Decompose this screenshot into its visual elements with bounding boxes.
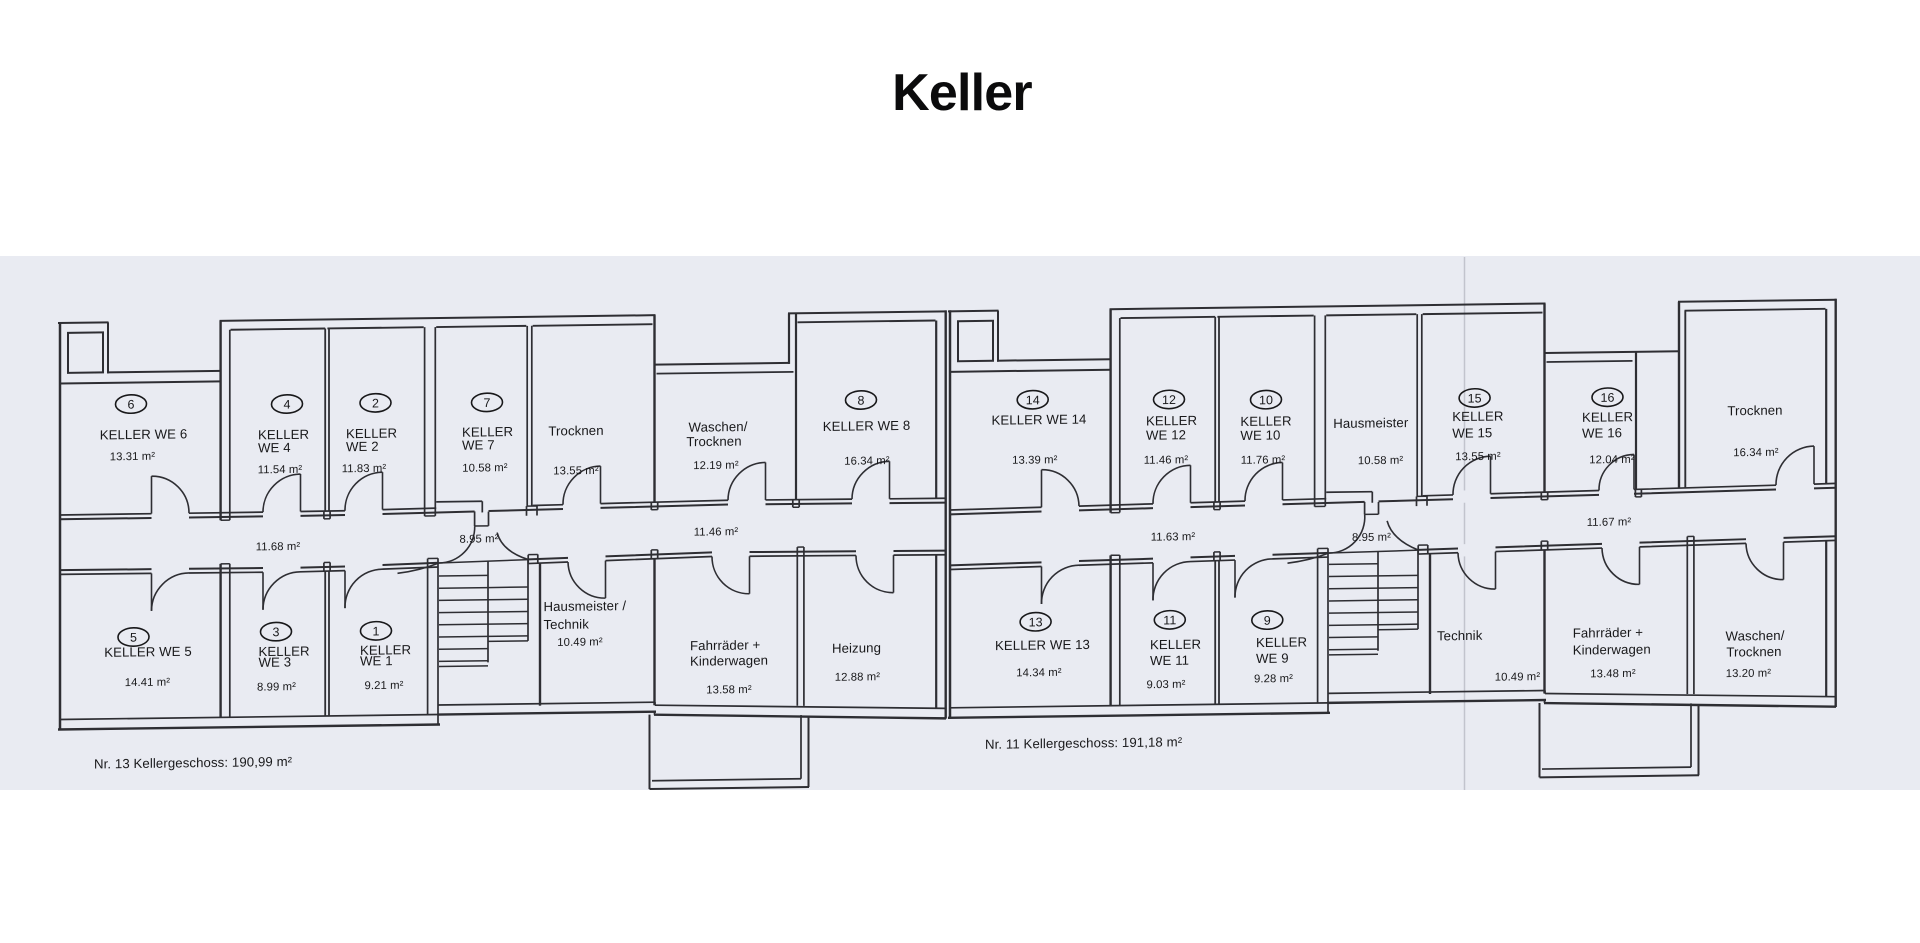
- svg-text:Waschen/: Waschen/: [689, 419, 748, 435]
- svg-text:14.41 m²: 14.41 m²: [125, 677, 171, 690]
- svg-text:13.55 m²: 13.55 m²: [553, 465, 599, 478]
- svg-text:KELLER: KELLER: [1150, 637, 1201, 653]
- svg-text:9: 9: [1264, 614, 1271, 628]
- svg-text:10: 10: [1259, 393, 1273, 407]
- svg-text:WE 11: WE 11: [1150, 653, 1189, 669]
- svg-text:11: 11: [1163, 613, 1176, 627]
- svg-text:10.49 m²: 10.49 m²: [1495, 671, 1541, 684]
- svg-text:4: 4: [284, 398, 291, 412]
- svg-text:Nr. 13 Kellergeschoss: 190,99: Nr. 13 Kellergeschoss: 190,99 m²: [94, 754, 293, 772]
- svg-text:9.28 m²: 9.28 m²: [1254, 673, 1293, 686]
- svg-text:15: 15: [1468, 391, 1482, 405]
- svg-text:11.46 m²: 11.46 m²: [694, 526, 739, 539]
- svg-text:WE 2: WE 2: [346, 439, 379, 454]
- svg-text:Trocknen: Trocknen: [1726, 644, 1781, 660]
- svg-text:KELLER WE 13: KELLER WE 13: [995, 637, 1090, 653]
- svg-text:10.58 m²: 10.58 m²: [1358, 455, 1404, 468]
- svg-text:16.34 m²: 16.34 m²: [844, 455, 890, 468]
- svg-text:Heizung: Heizung: [832, 640, 881, 656]
- svg-text:WE 3: WE 3: [259, 654, 292, 669]
- svg-text:13.39 m²: 13.39 m²: [1012, 454, 1058, 467]
- svg-text:13.20 m²: 13.20 m²: [1726, 668, 1772, 681]
- svg-text:2: 2: [372, 396, 379, 410]
- svg-text:Trocknen: Trocknen: [1727, 403, 1782, 419]
- svg-text:KELLER: KELLER: [1146, 413, 1197, 429]
- svg-text:Hausmeister: Hausmeister: [1333, 415, 1409, 431]
- svg-text:Hausmeister /: Hausmeister /: [544, 598, 627, 614]
- svg-text:8.95 m²: 8.95 m²: [460, 533, 499, 546]
- svg-text:3: 3: [273, 625, 280, 639]
- svg-text:Technik: Technik: [544, 617, 590, 633]
- svg-text:KELLER WE 14: KELLER WE 14: [991, 412, 1086, 428]
- svg-text:13.58 m²: 13.58 m²: [706, 684, 752, 697]
- svg-text:Nr. 11 Kellergeschoss: 191,18: Nr. 11 Kellergeschoss: 191,18 m²: [985, 734, 1183, 752]
- svg-text:11.76 m²: 11.76 m²: [1241, 454, 1286, 467]
- svg-text:13: 13: [1029, 615, 1043, 629]
- svg-text:7: 7: [484, 396, 491, 410]
- svg-text:1: 1: [373, 624, 380, 638]
- svg-text:Fahrräder +: Fahrräder +: [690, 637, 761, 653]
- svg-text:WE 7: WE 7: [462, 437, 495, 452]
- svg-text:8.95 m²: 8.95 m²: [1352, 532, 1391, 545]
- svg-text:WE 4: WE 4: [258, 440, 291, 455]
- svg-text:Trocknen: Trocknen: [686, 434, 741, 450]
- svg-text:16: 16: [1601, 391, 1615, 405]
- svg-text:11.63 m²: 11.63 m²: [1151, 531, 1196, 544]
- svg-text:Fahrräder +: Fahrräder +: [1573, 625, 1644, 641]
- svg-text:5: 5: [130, 631, 137, 645]
- svg-text:10.58 m²: 10.58 m²: [462, 462, 508, 475]
- svg-text:13.31 m²: 13.31 m²: [110, 451, 156, 464]
- svg-text:12.88 m²: 12.88 m²: [835, 671, 881, 684]
- svg-text:WE 1: WE 1: [360, 653, 393, 668]
- svg-text:KELLER: KELLER: [1240, 413, 1291, 429]
- svg-text:KELLER: KELLER: [1452, 408, 1503, 424]
- svg-text:KELLER: KELLER: [1582, 409, 1633, 425]
- svg-text:Waschen/: Waschen/: [1726, 628, 1785, 644]
- svg-text:WE 9: WE 9: [1256, 651, 1289, 666]
- svg-text:13.55 m²: 13.55 m²: [1455, 451, 1501, 464]
- svg-text:8: 8: [858, 394, 865, 408]
- svg-text:12: 12: [1162, 393, 1176, 407]
- svg-text:WE 15: WE 15: [1452, 425, 1492, 441]
- svg-text:WE 10: WE 10: [1240, 427, 1280, 443]
- svg-text:12.04 m²: 12.04 m²: [1589, 454, 1635, 467]
- svg-text:11.46 m²: 11.46 m²: [1144, 454, 1189, 467]
- svg-text:6: 6: [128, 398, 135, 412]
- svg-text:11.67 m²: 11.67 m²: [1587, 516, 1632, 529]
- svg-text:14.34 m²: 14.34 m²: [1016, 667, 1062, 680]
- svg-text:Kinderwagen: Kinderwagen: [690, 653, 768, 669]
- svg-text:Trocknen: Trocknen: [548, 423, 603, 439]
- svg-text:13.48 m²: 13.48 m²: [1590, 668, 1636, 681]
- svg-text:12.19 m²: 12.19 m²: [693, 460, 739, 473]
- svg-text:KELLER: KELLER: [1256, 634, 1307, 650]
- svg-text:WE 12: WE 12: [1146, 427, 1186, 443]
- svg-text:16.34 m²: 16.34 m²: [1733, 447, 1779, 460]
- svg-text:Kinderwagen: Kinderwagen: [1573, 642, 1651, 658]
- svg-text:10.49 m²: 10.49 m²: [557, 636, 603, 649]
- svg-text:14: 14: [1026, 393, 1040, 407]
- svg-text:9.03 m²: 9.03 m²: [1147, 679, 1186, 692]
- svg-text:WE 16: WE 16: [1582, 425, 1622, 441]
- svg-text:11.83 m²: 11.83 m²: [342, 463, 387, 476]
- svg-text:9.21 m²: 9.21 m²: [365, 680, 404, 693]
- svg-text:11.68 m²: 11.68 m²: [256, 541, 301, 554]
- svg-text:8.99 m²: 8.99 m²: [257, 681, 296, 694]
- svg-text:KELLER WE 5: KELLER WE 5: [104, 644, 192, 660]
- svg-text:KELLER WE 6: KELLER WE 6: [100, 426, 188, 442]
- svg-text:KELLER WE 8: KELLER WE 8: [823, 418, 911, 434]
- svg-text:Keller: Keller: [892, 64, 1032, 122]
- svg-text:11.54 m²: 11.54 m²: [258, 464, 303, 477]
- svg-text:Technik: Technik: [1437, 628, 1483, 644]
